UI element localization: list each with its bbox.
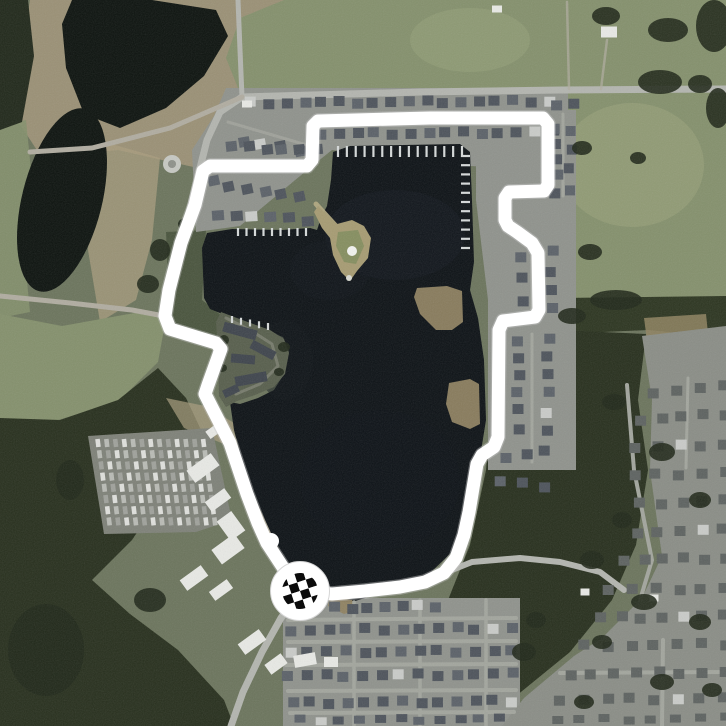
house — [414, 624, 425, 634]
parked-vehicle — [131, 506, 137, 515]
house — [595, 612, 606, 622]
house — [695, 383, 706, 393]
house — [513, 353, 524, 363]
house — [526, 98, 537, 108]
house — [672, 639, 683, 649]
tree — [512, 643, 536, 661]
street-south-2 — [288, 641, 516, 642]
house — [697, 668, 708, 678]
house — [360, 648, 371, 658]
house — [397, 696, 408, 706]
parked-vehicle — [142, 517, 148, 526]
parked-vehicle — [122, 506, 128, 515]
house — [568, 99, 579, 109]
house — [376, 647, 387, 657]
house — [494, 714, 505, 722]
parked-vehicle — [97, 450, 103, 459]
parked-vehicle — [174, 495, 180, 504]
tree — [650, 674, 674, 690]
house — [673, 470, 684, 480]
tree — [612, 512, 632, 528]
parked-vehicle — [110, 484, 116, 493]
house — [632, 528, 643, 538]
house — [285, 626, 296, 636]
parked-vehicle — [115, 517, 121, 526]
parked-vehicle — [182, 495, 188, 504]
house — [490, 646, 501, 656]
house — [458, 126, 469, 136]
parked-vehicle — [191, 495, 197, 504]
house — [385, 97, 396, 107]
parked-vehicle — [168, 517, 174, 526]
tree — [56, 460, 84, 500]
tree — [526, 612, 546, 628]
start-finish-marker[interactable] — [271, 562, 330, 621]
satellite-map[interactable] — [0, 0, 726, 726]
house — [283, 212, 296, 223]
house — [264, 211, 277, 222]
house — [422, 95, 433, 105]
parked-vehicle — [135, 472, 141, 481]
lake-shading — [300, 410, 460, 550]
parked-vehicle — [153, 472, 159, 481]
house — [675, 526, 686, 536]
parked-vehicle — [207, 484, 213, 493]
house — [719, 583, 726, 593]
street-south-3 — [286, 664, 516, 665]
house — [432, 697, 443, 707]
water-tank-center — [168, 160, 176, 168]
house — [495, 476, 506, 486]
fountain-icon — [347, 246, 357, 256]
house — [678, 498, 689, 508]
house — [455, 97, 466, 107]
house — [670, 715, 681, 723]
house — [585, 669, 596, 679]
house — [321, 646, 332, 656]
house — [431, 645, 442, 655]
tree — [572, 141, 592, 155]
parked-vehicle — [150, 450, 156, 459]
parked-vehicle — [185, 450, 191, 459]
house — [387, 130, 398, 140]
house — [718, 380, 726, 390]
parked-vehicle — [137, 484, 143, 493]
parked-vehicle — [165, 495, 171, 504]
parked-vehicle — [190, 484, 196, 493]
house — [507, 623, 518, 633]
parked-vehicle — [201, 439, 207, 448]
house — [522, 449, 533, 459]
house — [546, 285, 557, 295]
house — [334, 129, 345, 139]
house — [649, 469, 660, 479]
parked-vehicle — [122, 439, 128, 448]
house — [676, 440, 687, 450]
house — [551, 100, 562, 110]
house — [547, 303, 558, 313]
house — [517, 478, 528, 488]
house — [696, 638, 707, 648]
house — [301, 98, 312, 108]
parked-vehicle — [179, 472, 185, 481]
house — [450, 648, 461, 658]
parked-vehicle — [132, 450, 138, 459]
house — [720, 410, 726, 420]
house — [293, 144, 305, 155]
tree — [558, 308, 586, 324]
house — [341, 645, 352, 655]
house — [357, 671, 368, 681]
house — [492, 128, 503, 138]
tree — [648, 18, 688, 42]
map-viewport[interactable] — [0, 0, 726, 726]
house — [512, 336, 523, 346]
house — [648, 388, 659, 398]
house — [544, 334, 555, 344]
parked-vehicle — [178, 461, 184, 470]
parked-vehicle — [192, 439, 198, 448]
house — [573, 715, 584, 723]
house — [435, 716, 446, 724]
house — [225, 141, 237, 152]
parked-vehicle — [112, 495, 118, 504]
house — [720, 554, 726, 564]
house — [488, 96, 499, 106]
house — [645, 716, 656, 724]
house — [358, 697, 369, 707]
house — [368, 127, 379, 137]
parked-vehicle — [95, 439, 101, 448]
house — [486, 695, 497, 705]
parked-vehicle — [147, 495, 153, 504]
building-white-roof — [601, 27, 617, 38]
house — [656, 499, 667, 509]
house — [719, 494, 726, 504]
house — [518, 296, 529, 306]
parked-vehicle — [125, 461, 131, 470]
house — [352, 99, 363, 109]
house — [657, 613, 668, 623]
parked-vehicle — [200, 495, 206, 504]
parked-vehicle — [107, 461, 113, 470]
parked-vehicle — [212, 517, 218, 526]
house — [566, 126, 576, 136]
house — [343, 698, 354, 708]
house — [329, 602, 340, 612]
parked-vehicle — [169, 461, 175, 470]
tree — [578, 244, 602, 260]
house — [316, 717, 327, 725]
house — [678, 612, 689, 622]
house — [693, 693, 704, 703]
house — [212, 210, 225, 221]
house — [657, 414, 668, 424]
house — [552, 716, 563, 724]
house — [720, 667, 726, 677]
parked-vehicle — [141, 450, 147, 459]
parked-vehicle — [176, 450, 182, 459]
parked-vehicle — [98, 461, 104, 470]
parked-vehicle — [198, 484, 204, 493]
parked-vehicle — [106, 517, 112, 526]
parked-vehicle — [134, 461, 140, 470]
parked-vehicle — [186, 517, 192, 526]
house — [675, 411, 686, 421]
house — [367, 98, 378, 108]
house — [657, 554, 668, 564]
house — [529, 126, 540, 136]
tree — [702, 683, 722, 697]
house — [673, 669, 684, 679]
house — [322, 669, 333, 679]
house — [302, 670, 313, 680]
house — [295, 715, 306, 723]
house — [514, 370, 525, 380]
house — [513, 404, 524, 414]
house — [305, 626, 316, 636]
parked-vehicle — [133, 517, 139, 526]
house — [304, 696, 315, 706]
house — [511, 127, 522, 137]
tree — [638, 70, 682, 94]
house — [720, 467, 726, 477]
parked-vehicle — [160, 461, 166, 470]
parked-vehicle — [104, 439, 110, 448]
field-north-light-patch — [410, 8, 530, 72]
tree — [631, 594, 657, 610]
house — [288, 697, 299, 707]
street-south-4 — [288, 690, 516, 691]
house — [697, 469, 708, 479]
house — [301, 216, 314, 227]
house — [359, 623, 370, 633]
parked-vehicle — [151, 461, 157, 470]
parked-vehicle — [175, 506, 181, 515]
house — [565, 185, 575, 195]
house — [541, 408, 552, 418]
house — [474, 96, 485, 106]
route-bump — [263, 533, 279, 549]
tree — [592, 635, 612, 649]
house — [393, 669, 404, 679]
tree — [689, 614, 711, 630]
house — [245, 211, 258, 222]
field-east-light-patch — [560, 103, 704, 227]
parked-vehicle — [139, 439, 145, 448]
building-white-roof — [492, 6, 502, 13]
house — [501, 453, 512, 463]
parked-vehicle — [123, 450, 129, 459]
house — [377, 670, 388, 680]
house — [515, 252, 526, 262]
house — [619, 556, 630, 566]
house — [470, 647, 481, 657]
house — [315, 97, 326, 107]
house — [340, 624, 351, 634]
parked-vehicle — [177, 517, 183, 526]
house — [624, 717, 635, 725]
parked-vehicle — [202, 506, 208, 515]
parked-vehicle — [113, 439, 119, 448]
house — [635, 614, 646, 624]
house — [324, 625, 335, 635]
parked-vehicle — [149, 506, 155, 515]
house — [548, 246, 559, 256]
street-south-1 — [288, 618, 516, 620]
house — [647, 640, 658, 650]
house — [651, 527, 662, 537]
parked-vehicle — [114, 450, 120, 459]
house — [396, 714, 407, 722]
house — [627, 584, 638, 594]
house — [517, 273, 528, 283]
house — [439, 127, 450, 137]
parked-vehicle — [170, 472, 176, 481]
building-white-roof — [242, 101, 252, 108]
house — [564, 163, 574, 173]
parked-vehicle — [157, 439, 163, 448]
house — [508, 668, 519, 678]
house — [456, 715, 467, 723]
house — [717, 524, 726, 534]
parked-vehicle — [144, 472, 150, 481]
parked-vehicle — [109, 472, 115, 481]
house — [578, 640, 589, 650]
house — [433, 623, 444, 633]
house — [378, 696, 389, 706]
house — [544, 387, 555, 397]
parked-vehicle — [181, 484, 187, 493]
house — [695, 714, 706, 722]
parked-vehicle — [130, 439, 136, 448]
parked-vehicle — [116, 461, 122, 470]
parked-vehicle — [158, 506, 164, 515]
parked-vehicle — [158, 450, 164, 459]
house — [603, 694, 614, 704]
house — [412, 600, 423, 610]
parked-vehicle — [162, 472, 168, 481]
house — [413, 717, 424, 725]
house — [380, 602, 391, 612]
parked-vehicle — [146, 484, 152, 493]
parked-vehicle — [194, 450, 200, 459]
house — [406, 129, 417, 139]
house — [603, 585, 614, 595]
house — [539, 482, 550, 492]
house — [413, 668, 424, 678]
house — [230, 210, 243, 221]
house — [477, 129, 488, 139]
house — [452, 670, 463, 680]
house — [333, 717, 344, 725]
parked-vehicle — [140, 506, 146, 515]
house — [629, 443, 640, 453]
parked-vehicle — [203, 517, 209, 526]
parked-vehicle — [163, 484, 169, 493]
parked-vehicle — [124, 517, 130, 526]
house — [720, 713, 726, 721]
house — [263, 99, 274, 109]
street-se-v2 — [686, 378, 688, 468]
house — [695, 441, 706, 451]
house — [323, 699, 334, 709]
parked-vehicle — [106, 450, 112, 459]
house — [673, 694, 684, 704]
parked-vehicle — [103, 495, 109, 504]
house — [347, 604, 358, 614]
house — [675, 585, 686, 595]
house — [514, 424, 525, 434]
parked-vehicle — [142, 461, 148, 470]
house — [379, 626, 390, 636]
house — [353, 128, 364, 138]
street-south-5 — [290, 712, 514, 713]
parked-vehicle — [114, 506, 120, 515]
house — [695, 584, 706, 594]
house — [554, 696, 565, 706]
tree — [630, 152, 646, 164]
house — [617, 611, 628, 621]
house — [542, 426, 553, 436]
house — [698, 409, 709, 419]
house — [718, 440, 726, 450]
house — [511, 387, 522, 397]
parked-vehicle — [130, 495, 136, 504]
parked-vehicle — [128, 484, 134, 493]
building-white-roof — [324, 657, 338, 667]
tree — [137, 275, 159, 293]
parked-vehicle — [184, 506, 190, 515]
tree — [590, 290, 642, 310]
house — [361, 603, 372, 613]
parked-vehicle — [105, 506, 111, 515]
house — [404, 96, 415, 106]
house — [437, 98, 448, 108]
parked-vehicle — [167, 450, 173, 459]
house — [507, 95, 518, 105]
house — [430, 602, 441, 612]
house — [337, 672, 348, 682]
house — [539, 446, 550, 456]
tree — [688, 75, 712, 93]
house — [452, 697, 463, 707]
house — [648, 695, 659, 705]
docks-north-shore — [338, 146, 462, 157]
tree — [649, 443, 675, 461]
house — [471, 696, 482, 706]
tree — [278, 342, 290, 352]
house — [424, 128, 435, 138]
house — [631, 667, 642, 677]
house — [398, 601, 409, 611]
house — [275, 144, 287, 155]
tree — [592, 7, 620, 25]
parked-vehicle — [148, 439, 154, 448]
house — [334, 96, 345, 106]
house — [599, 714, 610, 722]
house — [630, 470, 641, 480]
house — [282, 98, 293, 108]
tree — [8, 604, 84, 696]
tree — [689, 492, 711, 508]
house — [545, 267, 556, 277]
house — [698, 525, 709, 535]
parked-vehicle — [119, 484, 125, 493]
house — [417, 698, 428, 708]
house — [488, 668, 499, 678]
house — [651, 583, 662, 593]
